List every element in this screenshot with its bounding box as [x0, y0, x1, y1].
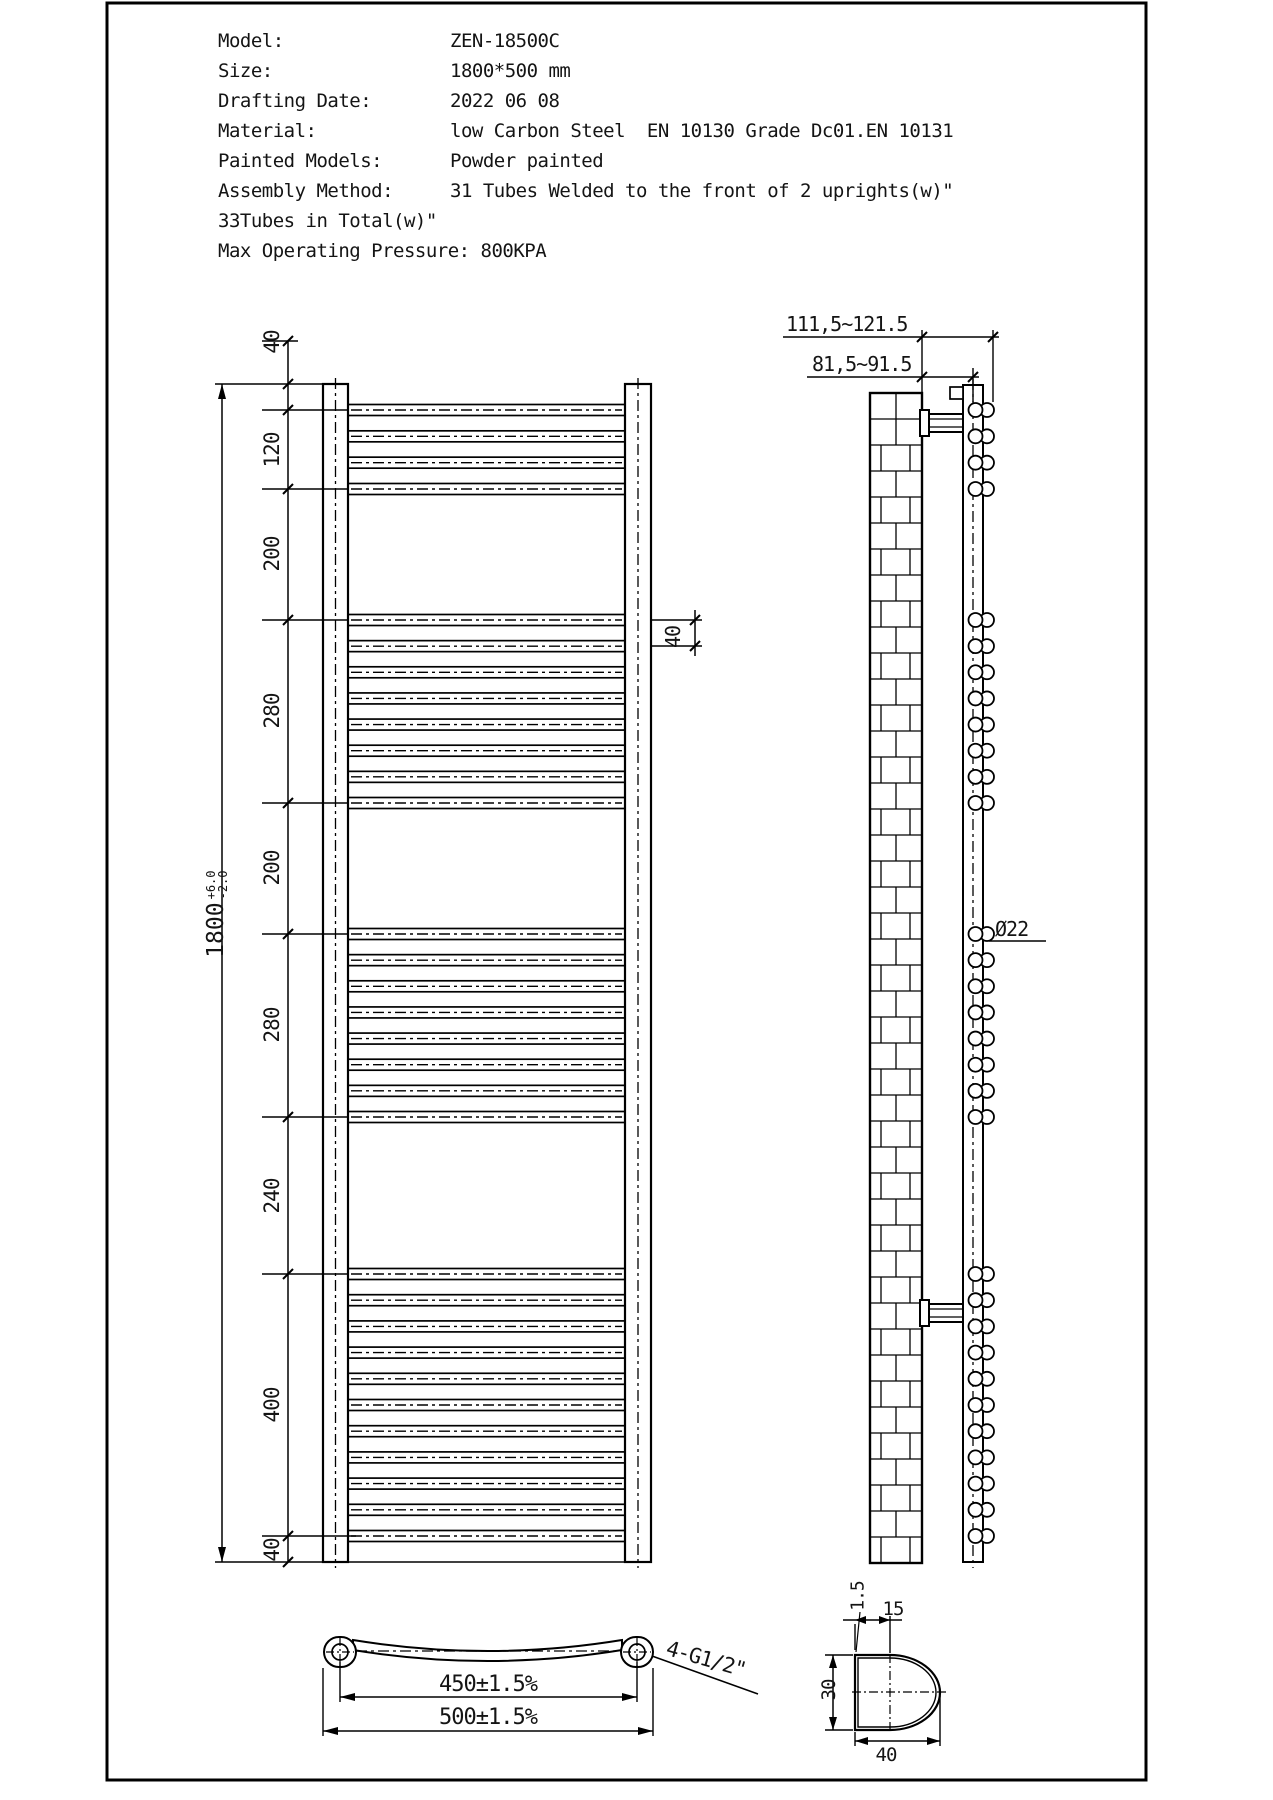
spec-value: Powder painted: [450, 150, 603, 172]
overall-height-dimension: 1800+6.0-2.0: [177, 871, 229, 986]
spec-label: Painted Models:: [218, 150, 382, 172]
overall-tol-plus: +6.0: [205, 871, 217, 900]
chain-dim-label: 120: [260, 433, 284, 468]
tube-diameter-label: Ø22: [995, 917, 1028, 941]
chain-dim-label: 240: [260, 1179, 284, 1214]
spec-value: low Carbon Steel EN 10130 Grade Dc01.EN …: [450, 120, 953, 142]
spec-value: 2022 06 08: [450, 90, 559, 112]
chain-dim-label: 280: [260, 1008, 284, 1043]
chain-dim-label: 400: [260, 1388, 284, 1423]
overall-tol-minus: -2.0: [217, 871, 229, 900]
chain-dim-label: 40: [260, 330, 284, 353]
chain-dim-label: 280: [260, 694, 284, 729]
spec-note: 33Tubes in Total(w)": [218, 210, 437, 232]
tube-pitch-dimension: 40: [661, 626, 685, 648]
drawing-page: { "title_block": { "rows": [ {"label": "…: [0, 0, 1273, 1800]
spec-label: Size:: [218, 60, 273, 82]
spec-label: Drafting Date:: [218, 90, 371, 112]
profile-width-dimension: 40: [876, 1744, 897, 1766]
rail-centres-dimension: 450±1.5%: [439, 1672, 537, 1697]
wall-to-upright-dimension: 81,5~91.5: [812, 352, 911, 376]
wall-thickness-dimension: 1.5: [848, 1581, 869, 1611]
spec-label: Model:: [218, 30, 284, 52]
spec-value: ZEN-18500C: [450, 30, 559, 52]
wall-to-front-dimension: 111,5~121.5: [786, 312, 907, 336]
chain-dim-label: 40: [260, 1538, 284, 1561]
chain-dim-label: 200: [260, 537, 284, 572]
spec-label: Material:: [218, 120, 316, 142]
flat-width-dimension: 15: [883, 1598, 904, 1620]
spec-value: 31 Tubes Welded to the front of 2 uprigh…: [450, 180, 953, 202]
rail-overall-dimension: 500±1.5%: [439, 1705, 537, 1730]
profile-depth-dimension: 30: [818, 1680, 840, 1701]
overall-height-value: 1800: [203, 902, 229, 957]
spec-value: 1800*500 mm: [450, 60, 570, 82]
chain-dim-label: 200: [260, 851, 284, 886]
spec-label: Assembly Method:: [218, 180, 393, 202]
spec-pressure: Max Operating Pressure: 800KPA: [218, 240, 546, 262]
